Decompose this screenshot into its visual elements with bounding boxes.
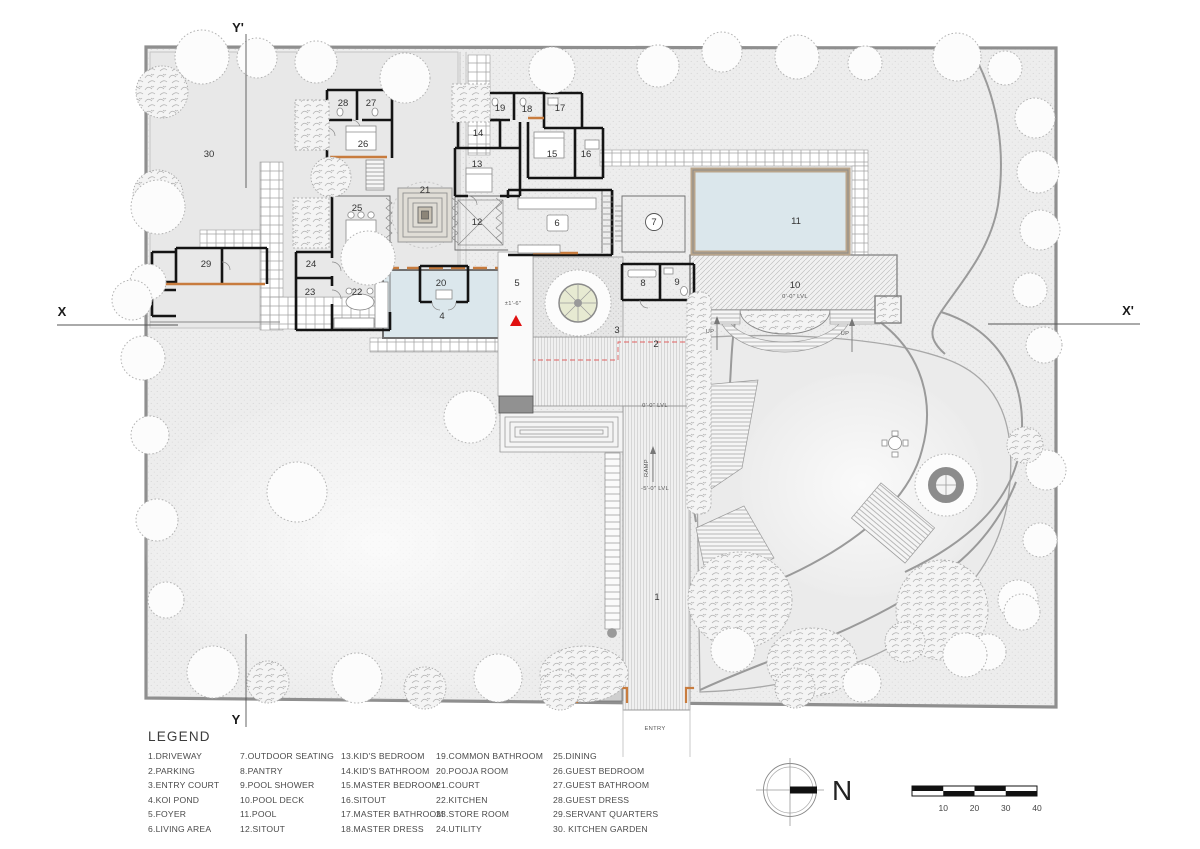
room-number-label: 8 <box>640 278 645 289</box>
legend-item: 9.POOL SHOWER <box>240 780 334 790</box>
site-plan-drawing: N 10203040 12345678910111213141516171819… <box>0 0 1200 849</box>
scale-labels: 10203040 <box>939 803 1042 813</box>
scale-tick-label: 10 <box>939 803 949 813</box>
room-number-label: 17 <box>555 103 566 114</box>
legend-item: 17.MASTER BATHROOM <box>341 809 444 819</box>
annotation-label: UP <box>841 331 850 337</box>
legend-item: 2.PARKING <box>148 766 219 776</box>
room-number-label: 1 <box>654 592 659 603</box>
legend-item: 6.LIVING AREA <box>148 824 219 834</box>
legend-item: 26.GUEST BEDROOM <box>553 766 658 776</box>
legend-column: 19.COMMON BATHROOM20.POOJA ROOM21.COURT2… <box>436 751 543 839</box>
legend-item: 22.KITCHEN <box>436 795 543 805</box>
room-number-label: 29 <box>201 259 212 270</box>
north-label: N <box>832 775 852 806</box>
legend-item: 19.COMMON BATHROOM <box>436 751 543 761</box>
legend-column: 1.DRIVEWAY2.PARKING3.ENTRY COURT4.KOI PO… <box>148 751 219 839</box>
legend-item: 18.MASTER DRESS <box>341 824 444 834</box>
room-number-label: 12 <box>472 217 483 228</box>
section-marker-label: Y' <box>232 20 244 35</box>
legend-item: 28.GUEST DRESS <box>553 795 658 805</box>
legend-item: 23.STORE ROOM <box>436 809 543 819</box>
room-number-label: 9 <box>674 277 679 288</box>
room-number-label: 4 <box>439 311 444 322</box>
room-number-label: 6 <box>554 218 559 229</box>
annotation-label: UP <box>706 329 715 335</box>
annotation-label: 0'-0" LVL <box>642 403 668 409</box>
room-number-label: 5 <box>514 278 519 289</box>
room-number-label: 19 <box>495 103 506 114</box>
legend-item: 11.POOL <box>240 809 334 819</box>
room-number-label: 2 <box>653 339 658 350</box>
section-marker-label: Y <box>232 712 241 727</box>
legend-item: 3.ENTRY COURT <box>148 780 219 790</box>
stair-strip <box>605 453 620 638</box>
annotation-label: ±1'-6" <box>505 301 522 307</box>
legend-item: 15.MASTER BEDROOM <box>341 780 444 790</box>
legend-item: 8.PANTRY <box>240 766 334 776</box>
room-number-label: 13 <box>472 159 483 170</box>
room-number-label: 21 <box>420 185 431 196</box>
legend-item: 1.DRIVEWAY <box>148 751 219 761</box>
room-number-label: 30 <box>204 149 215 160</box>
scale-tick-label: 20 <box>970 803 980 813</box>
legend-item: 14.KID'S BATHROOM <box>341 766 444 776</box>
legend-item: 10.POOL DECK <box>240 795 334 805</box>
room-number-label: 7 <box>651 217 656 228</box>
entry-mat <box>499 396 533 413</box>
room-number-label: 15 <box>547 149 558 160</box>
room-number-label: 14 <box>473 128 484 139</box>
tree-ring-seat <box>915 454 977 516</box>
annotation-label: -5'-0" LVL <box>641 486 669 492</box>
north-compass: N <box>756 758 852 826</box>
legend-column: 25.DINING26.GUEST BEDROOM27.GUEST BATHRO… <box>553 751 658 839</box>
legend: LEGEND 1.DRIVEWAY2.PARKING3.ENTRY COURT4… <box>148 729 708 750</box>
room-number-label: 16 <box>581 149 592 160</box>
legend-item: 16.SITOUT <box>341 795 444 805</box>
legend-item: 24.UTILITY <box>436 824 543 834</box>
north-pointer <box>790 787 817 794</box>
legend-item: 25.DINING <box>553 751 658 761</box>
room-number-label: 24 <box>306 259 317 270</box>
room-number-label: 11 <box>791 216 801 227</box>
legend-item: 30. KITCHEN GARDEN <box>553 824 658 834</box>
legend-item: 7.OUTDOOR SEATING <box>240 751 334 761</box>
foyer-walkway <box>498 252 533 413</box>
room-number-label: 28 <box>338 98 349 109</box>
parking-area <box>533 337 690 406</box>
room-number-label: 27 <box>366 98 377 109</box>
site-plan-page: N 10203040 12345678910111213141516171819… <box>0 0 1200 849</box>
room-number-label: 3 <box>614 325 619 336</box>
room-number-label: 20 <box>436 278 447 289</box>
annotation-label: RAMP <box>644 459 650 477</box>
legend-item: 21.COURT <box>436 780 543 790</box>
legend-item: 5.FOYER <box>148 809 219 819</box>
room-number-label: 10 <box>790 280 801 291</box>
room-number-label: 18 <box>522 104 533 115</box>
section-marker-label: X' <box>1122 303 1134 318</box>
court-tree-planter <box>545 270 611 336</box>
legend-item: 13.KID'S BEDROOM <box>341 751 444 761</box>
section-marker-label: X <box>58 304 67 319</box>
legend-item: 4.KOI POND <box>148 795 219 805</box>
annotation-label: 0'-0" LVL <box>782 294 808 300</box>
scale-tick-label: 40 <box>1032 803 1042 813</box>
room-number-label: 23 <box>305 287 316 298</box>
legend-item: 29.SERVANT QUARTERS <box>553 809 658 819</box>
legend-item: 12.SITOUT <box>240 824 334 834</box>
scale-tick-label: 30 <box>1001 803 1011 813</box>
pool <box>693 170 848 253</box>
legend-item: 27.GUEST BATHROOM <box>553 780 658 790</box>
scale-bar: 10203040 <box>912 786 1042 813</box>
room-number-label: 25 <box>352 203 363 214</box>
legend-column: 13.KID'S BEDROOM14.KID'S BATHROOM15.MAST… <box>341 751 444 839</box>
legend-title: LEGEND <box>148 729 708 744</box>
bed-kids <box>466 168 492 192</box>
legend-column: 7.OUTDOOR SEATING8.PANTRY9.POOL SHOWER10… <box>240 751 334 839</box>
room-number-label: 26 <box>358 139 369 150</box>
legend-item: 20.POOJA ROOM <box>436 766 543 776</box>
room-number-label: 22 <box>352 287 363 298</box>
